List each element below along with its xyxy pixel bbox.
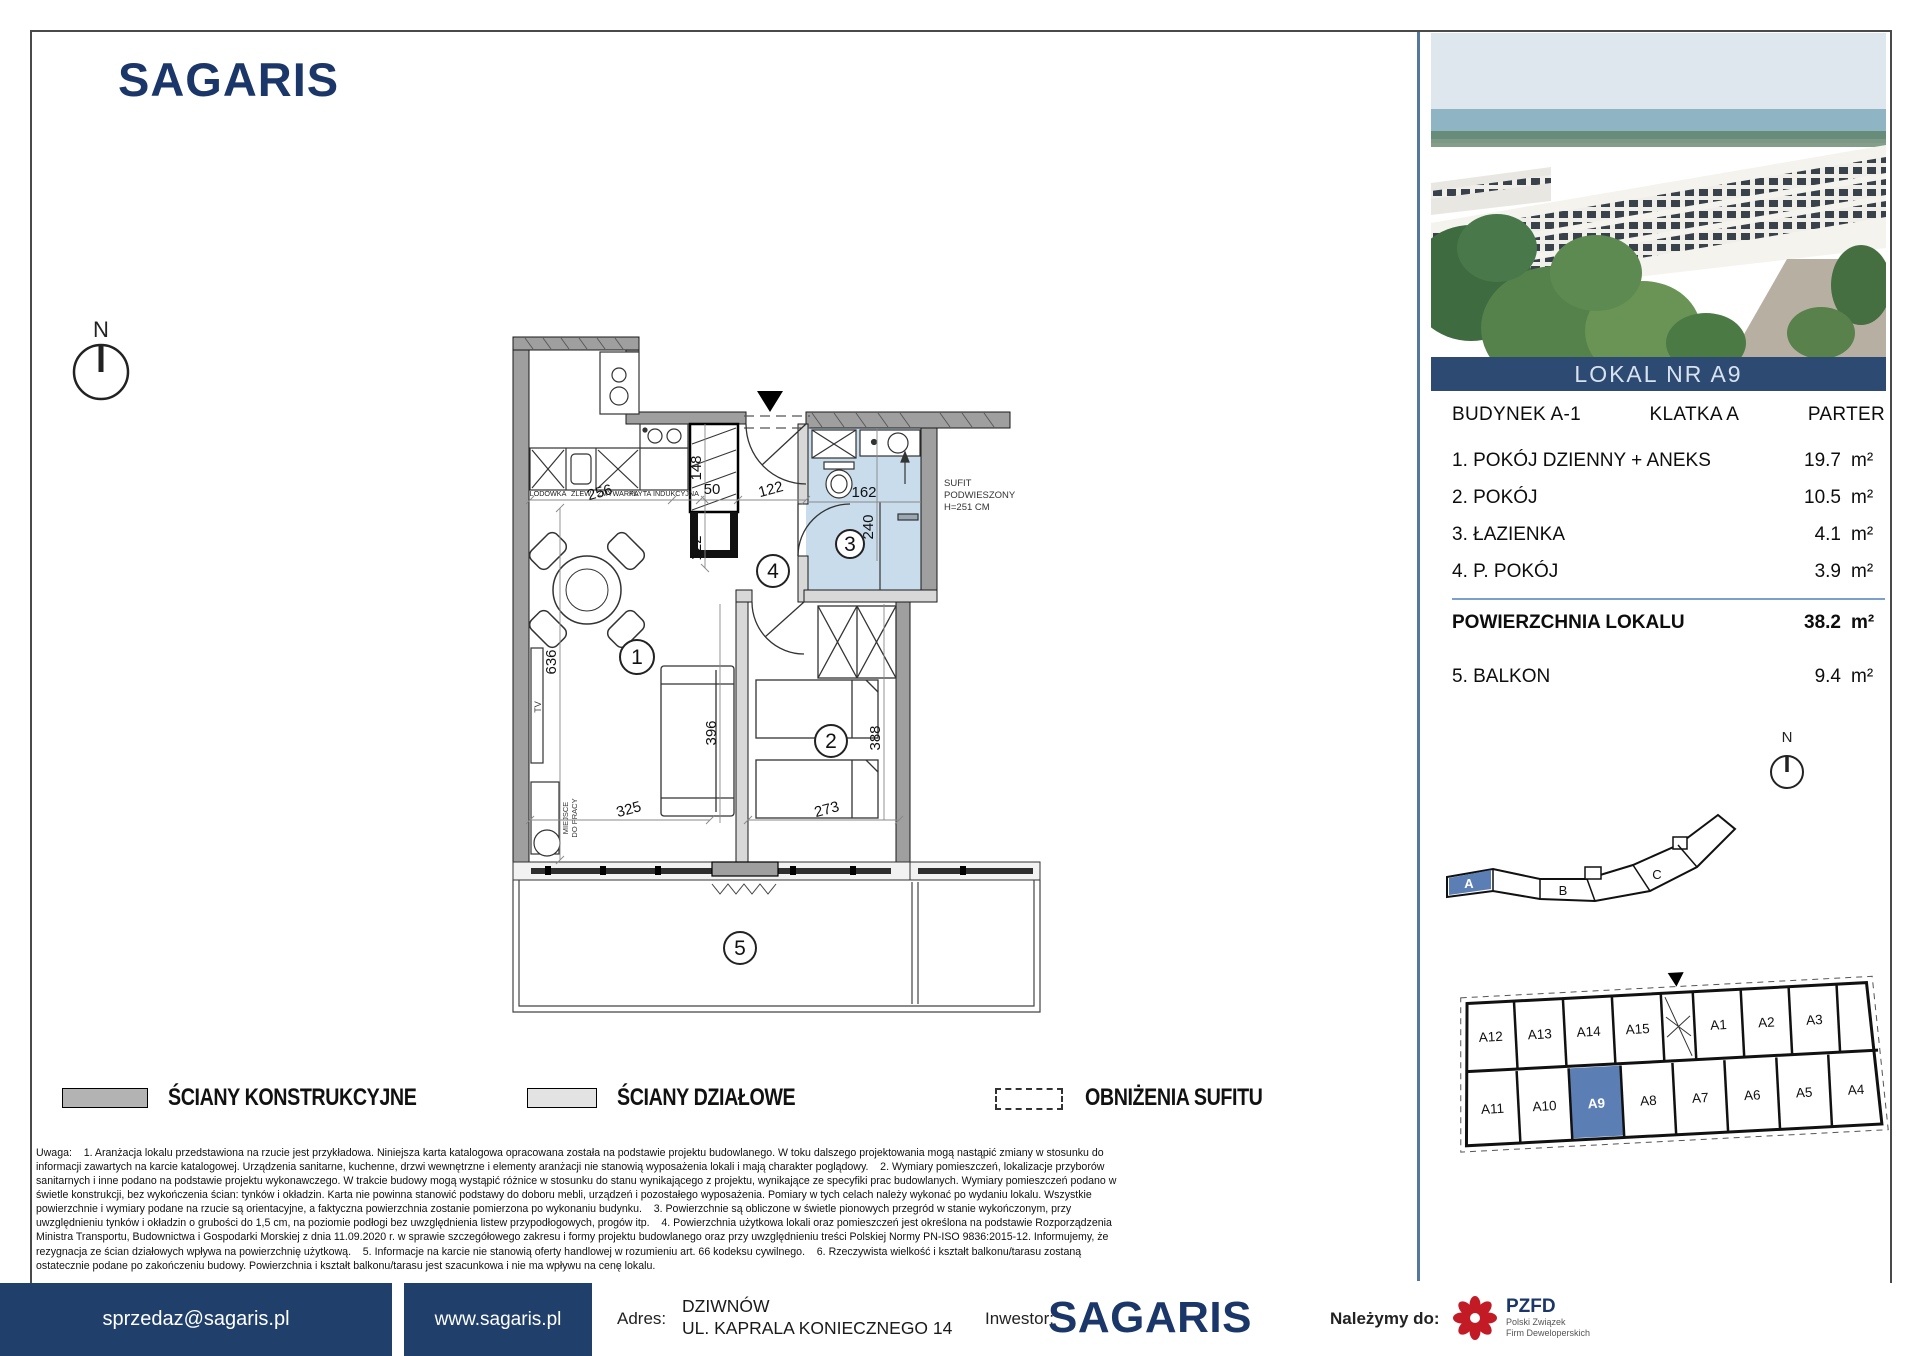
legend: ŚCIANY KONSTRUKCYJNE ŚCIANY DZIAŁOWE OBN… xyxy=(0,1082,1400,1116)
cell-a13: A13 xyxy=(1527,1026,1552,1042)
cell-a3: A3 xyxy=(1806,1012,1823,1028)
north-label: N xyxy=(93,317,109,342)
entrance-marker-icon xyxy=(757,391,783,412)
cell-a2: A2 xyxy=(1758,1014,1775,1030)
total-area-label: POWIERZCHNIA LOKALU xyxy=(1452,612,1785,634)
hob-label: PŁYTA INDUKCYJNA xyxy=(629,489,699,498)
balcony-row: 5. BALKON 9.4 m² xyxy=(1452,666,1885,688)
room-2-label: 2 xyxy=(825,730,837,753)
dim-bath-w: 162 xyxy=(851,484,876,501)
investor-label: Inwestor: xyxy=(985,1309,1054,1329)
total-area-unit: m² xyxy=(1841,612,1885,634)
ceiling-note-2: PODWIESZONY xyxy=(944,490,1016,501)
cell-a15: A15 xyxy=(1625,1021,1650,1037)
pzfd-sub-1: Polski Związek xyxy=(1506,1317,1590,1328)
room-4-label: 4 xyxy=(767,560,779,583)
room-1-label: 1 xyxy=(631,646,643,669)
cell-a4: A4 xyxy=(1847,1082,1865,1098)
workspace-label-1: MIEJSCE xyxy=(561,802,570,835)
workspace-label-2: DO PRACY xyxy=(570,798,579,837)
member-label: Należymy do: xyxy=(1330,1309,1440,1329)
cell-a5: A5 xyxy=(1796,1085,1813,1101)
room-name: 2. POKÓJ xyxy=(1452,487,1785,509)
room-area-unit: m² xyxy=(1841,561,1885,583)
workspace-desk xyxy=(531,782,560,856)
room-area: 3.9 xyxy=(1785,561,1841,583)
cell-a12: A12 xyxy=(1478,1029,1503,1045)
footer-website[interactable]: www.sagaris.pl xyxy=(404,1283,592,1356)
room-3-label: 3 xyxy=(844,533,856,556)
cell-a8: A8 xyxy=(1640,1093,1657,1109)
room-area-unit: m² xyxy=(1841,450,1885,472)
building-photo xyxy=(1431,33,1886,357)
room-area: 4.1 xyxy=(1785,524,1841,546)
legend-structural-wall-label: ŚCIANY KONSTRUKCYJNE xyxy=(168,1084,416,1112)
north-arrow-icon: N xyxy=(74,317,128,399)
ceiling-note: SUFIT PODWIESZONY H=251 CM xyxy=(944,478,1016,513)
balcony-area: 9.4 xyxy=(1785,666,1841,688)
tv-label: TV xyxy=(533,701,543,713)
room-name: 3. ŁAZIENKA xyxy=(1452,524,1785,546)
unit-banner: LOKAL NR A9 xyxy=(1431,357,1886,391)
unit-banner-label: LOKAL NR A9 xyxy=(1574,361,1742,387)
footer: sprzedaz@sagaris.pl www.sagaris.pl Adres… xyxy=(0,1283,1920,1356)
legend-ceiling-drop-label: OBNIŻENIA SUFITU xyxy=(1085,1084,1262,1112)
cell-a11: A11 xyxy=(1481,1101,1505,1117)
cell-a14: A14 xyxy=(1576,1024,1601,1040)
address-label: Adres: xyxy=(617,1309,666,1329)
unit-table: BUDYNEK A-1 KLATKA A PARTER 1. POKÓJ DZI… xyxy=(1452,404,1885,703)
dining-set xyxy=(527,530,647,650)
unit-table-header: BUDYNEK A-1 KLATKA A PARTER xyxy=(1452,404,1885,426)
dim-hall-w: 122 xyxy=(757,478,786,501)
pzfd-logo: PZFD Polski Związek Firm Deweloperskich xyxy=(1452,1295,1590,1341)
dim-hall-h: 122 xyxy=(688,535,705,560)
room-area-unit: m² xyxy=(1841,487,1885,509)
cell-a7: A7 xyxy=(1692,1090,1709,1106)
balcony-outline xyxy=(513,880,1040,1012)
ceiling-note-3: H=251 CM xyxy=(944,502,990,513)
window-wall xyxy=(513,862,1040,894)
balcony-door xyxy=(712,862,778,876)
total-area-row: POWIERZCHNIA LOKALU 38.2 m² xyxy=(1452,598,1885,634)
staircase-label: KLATKA A xyxy=(1650,404,1740,426)
room-row-3: 3. ŁAZIENKA 4.1 m² xyxy=(1452,524,1885,546)
door-threshold-hatch xyxy=(712,884,776,894)
investor-logo: SAGARIS xyxy=(1048,1293,1252,1343)
dim-shaft-h: 148 xyxy=(688,455,705,480)
disclaimer-text: Uwaga: 1. Aranżacja lokalu przedstawiona… xyxy=(36,1146,1120,1273)
site-plan: A B C xyxy=(1435,785,1775,950)
room-area-unit: m² xyxy=(1841,524,1885,546)
website-link[interactable]: www.sagaris.pl xyxy=(435,1309,562,1331)
legend-structural-wall-swatch xyxy=(62,1088,148,1108)
ceiling-note-1: SUFIT xyxy=(944,478,972,489)
room-name: 4. P. POKÓJ xyxy=(1452,561,1785,583)
room-area: 19.7 xyxy=(1785,450,1841,472)
kitchen-labels: LODÓWKA ZLEW ZMYWARKA PŁYTA INDUKCYJNA xyxy=(530,489,699,498)
site-building-a-label: A xyxy=(1464,876,1474,891)
building-label: BUDYNEK A-1 xyxy=(1452,404,1581,426)
pzfd-sub-2: Firm Deweloperskich xyxy=(1506,1328,1590,1339)
address-block: DZIWNÓW UL. KAPRALA KONIECZNEGO 14 xyxy=(682,1295,952,1339)
room-name: 1. POKÓJ DZIENNY + ANEKS xyxy=(1452,450,1785,472)
apartment-card-page: SAGARIS N xyxy=(0,0,1920,1356)
room-row-2: 2. POKÓJ 10.5 m² xyxy=(1452,487,1885,509)
north-small-label: N xyxy=(1782,729,1793,746)
email-link[interactable]: sprzedaz@sagaris.pl xyxy=(102,1308,289,1331)
footer-email[interactable]: sprzedaz@sagaris.pl xyxy=(0,1283,392,1356)
dim-bath-h: 240 xyxy=(860,514,877,539)
pzfd-flower-icon xyxy=(1452,1295,1498,1341)
sofa xyxy=(661,666,734,816)
address-line-1: DZIWNÓW xyxy=(682,1295,952,1317)
legend-partition-wall-label: ŚCIANY DZIAŁOWE xyxy=(617,1084,795,1112)
room-5-label: 5 xyxy=(734,937,746,960)
site-building-b-label: B xyxy=(1559,883,1568,898)
balcony-label: 5. BALKON xyxy=(1452,666,1785,688)
balcony-area-unit: m² xyxy=(1841,666,1885,688)
floor-label: PARTER xyxy=(1808,404,1885,426)
cell-a1: A1 xyxy=(1710,1017,1727,1033)
dim-bed-h: 388 xyxy=(867,725,884,750)
dim-living-w: 325 xyxy=(615,798,644,821)
total-area-value: 38.2 xyxy=(1785,612,1841,634)
room-area: 10.5 xyxy=(1785,487,1841,509)
dim-living-h: 636 xyxy=(543,649,560,674)
cell-a9: A9 xyxy=(1587,1095,1605,1111)
room-row-1: 1. POKÓJ DZIENNY + ANEKS 19.7 m² xyxy=(1452,450,1885,472)
dim-sofa: 396 xyxy=(703,720,720,745)
fridge-label: LODÓWKA xyxy=(530,489,567,498)
room-row-4: 4. P. POKÓJ 3.9 m² xyxy=(1452,561,1885,583)
pzfd-abbr: PZFD xyxy=(1506,1297,1590,1317)
legend-partition-wall-swatch xyxy=(527,1088,597,1108)
cell-a6: A6 xyxy=(1744,1087,1761,1103)
cell-a10: A10 xyxy=(1532,1098,1557,1114)
address-line-2: UL. KAPRALA KONIECZNEGO 14 xyxy=(682,1317,952,1339)
site-building-c-label: C xyxy=(1652,867,1661,882)
floor-plan: N xyxy=(0,0,1170,1060)
map-entrance-marker-icon xyxy=(1668,972,1685,987)
unit-location-map: A12 A13 A14 A15 A1 A2 A3 A11 A10 A9 A8 A… xyxy=(1450,955,1895,1160)
panel-divider xyxy=(1417,32,1420,1281)
dim-shaft-w: 50 xyxy=(704,481,721,498)
legend-ceiling-drop-swatch xyxy=(995,1088,1063,1110)
